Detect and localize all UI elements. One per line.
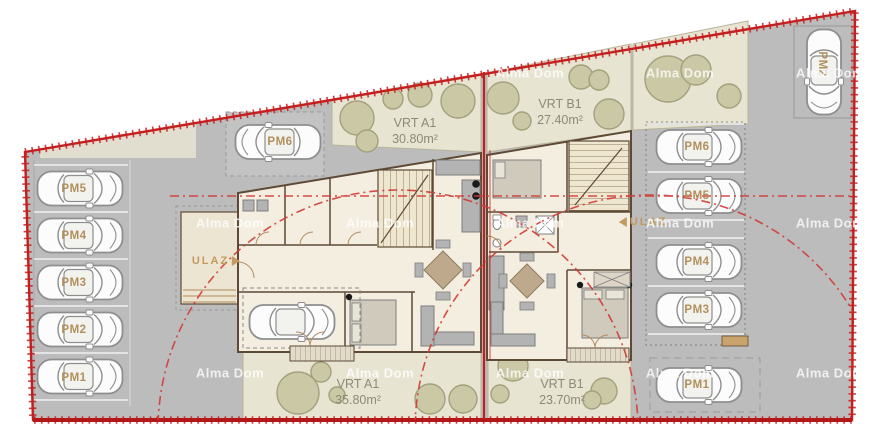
car-icon <box>657 128 742 167</box>
site-plan-drawing <box>0 0 876 427</box>
car-icon <box>236 123 321 162</box>
parking-left-column <box>34 160 130 418</box>
car-icon <box>38 216 123 255</box>
car-icon <box>38 310 123 349</box>
car-icon <box>657 366 742 405</box>
car-icon <box>805 30 844 115</box>
car-icon <box>250 303 335 342</box>
parking-bay-a <box>226 112 324 176</box>
car-icon <box>657 291 742 330</box>
car-icon <box>38 263 123 302</box>
car-icon <box>38 357 123 396</box>
building-b <box>487 131 632 362</box>
site-plan-canvas: PM5 PM4 PM3 PM2 PM1 PM6 PM6 PM5 PM4 PM3 … <box>0 0 876 427</box>
car-icon <box>38 169 123 208</box>
car-icon <box>657 243 742 282</box>
